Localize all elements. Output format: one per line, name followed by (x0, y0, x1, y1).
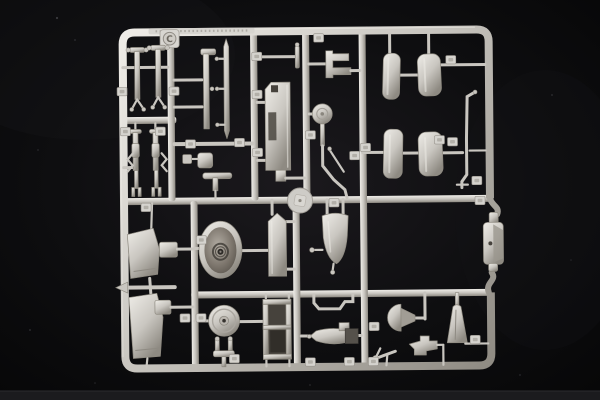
gate-medallion (287, 188, 312, 213)
part-number-tag (470, 335, 480, 343)
part-number-tag (117, 87, 127, 95)
sprue-photo-canvas: C (0, 0, 600, 400)
rail-vertical-5 (191, 201, 199, 368)
part-number-tag (196, 236, 206, 244)
part-number-tag (350, 151, 360, 159)
wing-panel-1 (127, 228, 159, 278)
part-number-tag (252, 90, 262, 98)
part-number-tag (120, 127, 130, 135)
photo-floor-strip (0, 391, 600, 400)
rail-vertical-3 (302, 31, 310, 200)
sprue-photo: C (0, 0, 600, 400)
radiator-frame-part (263, 294, 292, 366)
part-number-tag (196, 314, 206, 322)
gear-door-panel-1 (382, 53, 400, 99)
gear-door-panel-3 (383, 129, 403, 178)
part-number-tag (234, 138, 244, 146)
part-number-tag (169, 87, 179, 95)
part-number-tag (252, 52, 262, 60)
part-number-tag (185, 140, 195, 148)
part-number-tag (434, 136, 444, 144)
part-number-tag (361, 143, 371, 151)
rail-vertical-6 (293, 200, 301, 367)
sprue-letter: C (166, 35, 173, 45)
rail-vertical-1 (167, 32, 175, 201)
part-number-tag (305, 358, 315, 366)
part-number-tag (475, 196, 485, 204)
part-number-tag (472, 176, 482, 184)
part-number-tag (446, 55, 456, 63)
part-number-tag (369, 322, 379, 330)
wing-hinge-bracket-2 (155, 300, 171, 314)
part-number-tag (368, 357, 378, 365)
part-number-tag (329, 199, 339, 207)
part-number-tag (314, 34, 324, 42)
wing-hinge-bracket-1 (159, 242, 177, 257)
part-number-tag (155, 127, 165, 135)
part-number-tag (253, 148, 263, 156)
part-number-tag (141, 203, 151, 211)
gear-door-panel-2 (417, 53, 442, 96)
part-number-tag (305, 131, 315, 139)
part-number-tag (180, 314, 190, 322)
part-number-tag (229, 354, 239, 362)
part-number-tag (447, 137, 457, 145)
part-number-tag (344, 357, 354, 365)
